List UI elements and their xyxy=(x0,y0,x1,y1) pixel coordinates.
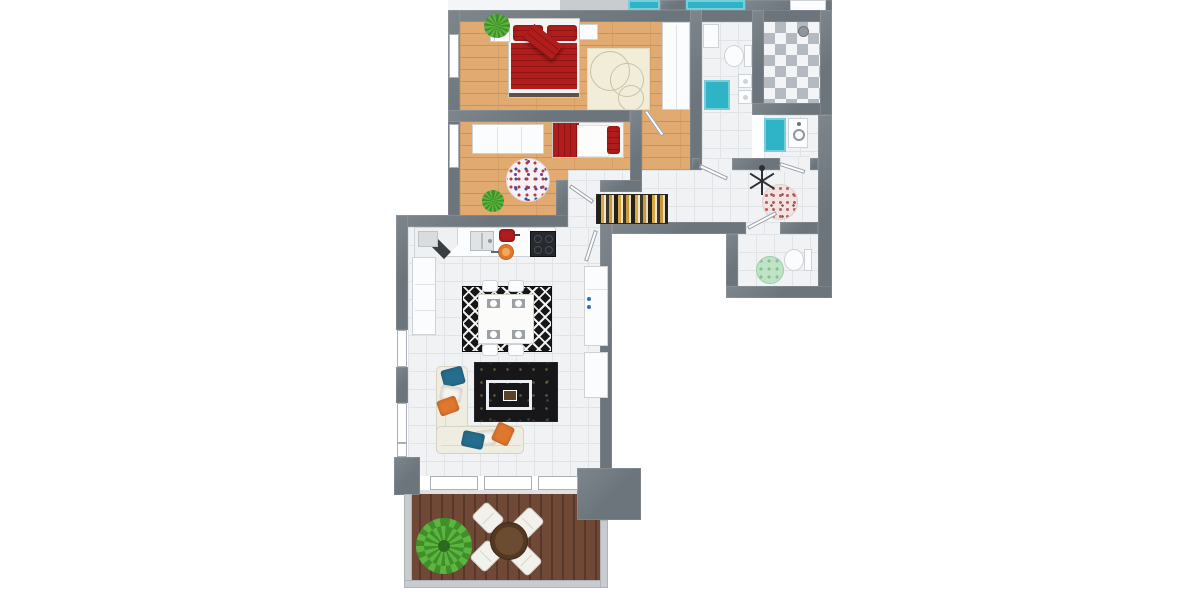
wall-wc-bottom xyxy=(726,286,832,298)
dining-chair-1 xyxy=(482,280,498,292)
chair4-fold xyxy=(520,554,532,566)
basin-drain-2 xyxy=(743,95,748,100)
wall-greatroom-top xyxy=(396,215,568,227)
plate-3 xyxy=(490,331,497,338)
terrace-railing-left xyxy=(404,494,412,586)
sideboard xyxy=(584,352,608,398)
washbasin-1 xyxy=(738,74,752,88)
dining-chair-3 xyxy=(482,344,498,356)
burner-1 xyxy=(534,235,542,243)
top-cut-room-floor xyxy=(448,0,560,10)
terrace-door-window-2 xyxy=(484,476,532,490)
sink-faucet xyxy=(488,239,492,243)
dining-table xyxy=(478,294,534,344)
laundry-mat-teal xyxy=(764,118,786,152)
potted-plant-bedroom2 xyxy=(482,190,504,212)
single-bed-pillow xyxy=(607,126,620,154)
toilet-tank xyxy=(744,45,752,67)
wardrobe-master xyxy=(662,22,690,110)
washbasin-2 xyxy=(738,90,752,104)
terrace-railing-bottom xyxy=(404,580,608,588)
counter-seam-1 xyxy=(415,284,435,285)
top-cut-room-floor-2 xyxy=(560,0,628,10)
toilet-wc-bowl xyxy=(784,249,804,271)
palm-plant xyxy=(416,518,472,574)
toilet-bowl xyxy=(724,45,744,67)
wall-bedroom2-step xyxy=(600,180,642,192)
washing-machine-drum xyxy=(793,129,805,141)
wardrobe2-seam-2 xyxy=(521,127,522,153)
pot-handle xyxy=(514,234,520,236)
fridge xyxy=(584,266,608,346)
toilet-wc-tank xyxy=(804,249,812,271)
room-shower-area xyxy=(764,22,820,103)
terrace-railing-right xyxy=(600,520,608,588)
coffee-table xyxy=(486,380,532,410)
washing-machine xyxy=(788,118,808,148)
wall-bottom-right-block xyxy=(577,468,641,520)
shower-head xyxy=(798,26,809,37)
dining-chair-2 xyxy=(508,280,524,292)
wall-greatroom-right xyxy=(600,222,612,470)
fridge-handle-1 xyxy=(587,297,591,301)
pan-handle xyxy=(491,251,499,253)
basin-drain xyxy=(743,79,748,84)
multicolor-dot-rug xyxy=(506,158,550,202)
wall-bathroom-shower-divider xyxy=(752,10,764,115)
plate-2 xyxy=(515,300,522,307)
window-master-left xyxy=(449,34,459,78)
bath-mat-teal xyxy=(704,80,730,110)
kitchen-counter-left xyxy=(412,257,436,335)
burner-3 xyxy=(534,246,542,254)
fridge-seam xyxy=(587,289,607,290)
coat-stand-top xyxy=(759,165,765,171)
sink-divider xyxy=(481,233,483,249)
toilet-bathroom xyxy=(724,44,752,68)
wall-right-outer-top xyxy=(820,10,832,115)
dining-chair-4 xyxy=(508,344,524,356)
single-bed-duvet xyxy=(577,125,609,157)
window-livingroom-left-1 xyxy=(397,330,407,367)
placemat-3 xyxy=(487,330,500,339)
potted-plant-master xyxy=(484,14,510,38)
corner-unit-top xyxy=(418,231,438,247)
terrace-round-table xyxy=(490,522,528,560)
coffee-table-tray xyxy=(503,390,517,401)
double-bed xyxy=(508,18,580,98)
toilet-wc xyxy=(784,248,812,272)
burner-2 xyxy=(545,235,553,243)
palm-plant-center xyxy=(438,540,450,552)
chair1-fold xyxy=(482,512,494,524)
top-cut-teal-strip-2 xyxy=(686,0,745,10)
terrace-door-window-3 xyxy=(538,476,578,490)
placemat-2 xyxy=(512,299,525,308)
window-bedroom2-left xyxy=(449,124,459,168)
striped-runner-rug xyxy=(596,194,668,224)
wall-hallway-bottom-b xyxy=(780,222,818,234)
green-round-mat xyxy=(756,256,784,284)
wall-hallway-top-a xyxy=(692,158,700,170)
burner-4 xyxy=(545,246,553,254)
plate-1 xyxy=(490,300,497,307)
wall-bottom-left-stub xyxy=(394,457,420,495)
wardrobe-seam xyxy=(676,25,677,109)
window-livingroom-left-2 xyxy=(397,403,407,443)
wall-greatroom-left-b xyxy=(396,367,408,403)
single-bed xyxy=(552,122,624,158)
bathroom-cabinet xyxy=(703,24,719,48)
plate-4 xyxy=(515,331,522,338)
circle-pattern-rug xyxy=(587,48,650,110)
wall-right-outer-mid xyxy=(818,115,832,298)
counter-seam-2 xyxy=(415,310,435,311)
wall-greatroom-left-a xyxy=(396,215,408,330)
bed-footboard xyxy=(509,93,579,97)
nightstand-right xyxy=(578,24,598,40)
stove xyxy=(530,231,556,257)
floor-plan-canvas xyxy=(0,0,1200,600)
wall-bathroom-left xyxy=(690,10,702,170)
placemat-4 xyxy=(512,330,525,339)
wall-hallway-top-c xyxy=(810,158,818,170)
washing-machine-knob xyxy=(797,122,801,126)
coat-stand xyxy=(748,166,776,196)
fridge-handle-2 xyxy=(587,305,591,309)
chair3-fold xyxy=(480,550,492,562)
chair2-fold xyxy=(522,517,534,529)
wall-bedroom-divider xyxy=(448,110,630,122)
top-cut-wall-piece xyxy=(660,0,686,10)
window-livingroom-left-3 xyxy=(397,443,407,457)
single-bed-blanket xyxy=(553,123,579,157)
kitchen-sink xyxy=(470,231,494,251)
wardrobe2-seam-1 xyxy=(497,127,498,153)
orange-pan xyxy=(498,244,514,260)
placemat-1 xyxy=(487,299,500,308)
rug-circle-3 xyxy=(618,85,644,110)
terrace-door-window-1 xyxy=(430,476,478,490)
top-cut-teal-strip xyxy=(628,0,660,10)
red-pot xyxy=(499,229,515,242)
wardrobe-bedroom2 xyxy=(472,124,544,154)
